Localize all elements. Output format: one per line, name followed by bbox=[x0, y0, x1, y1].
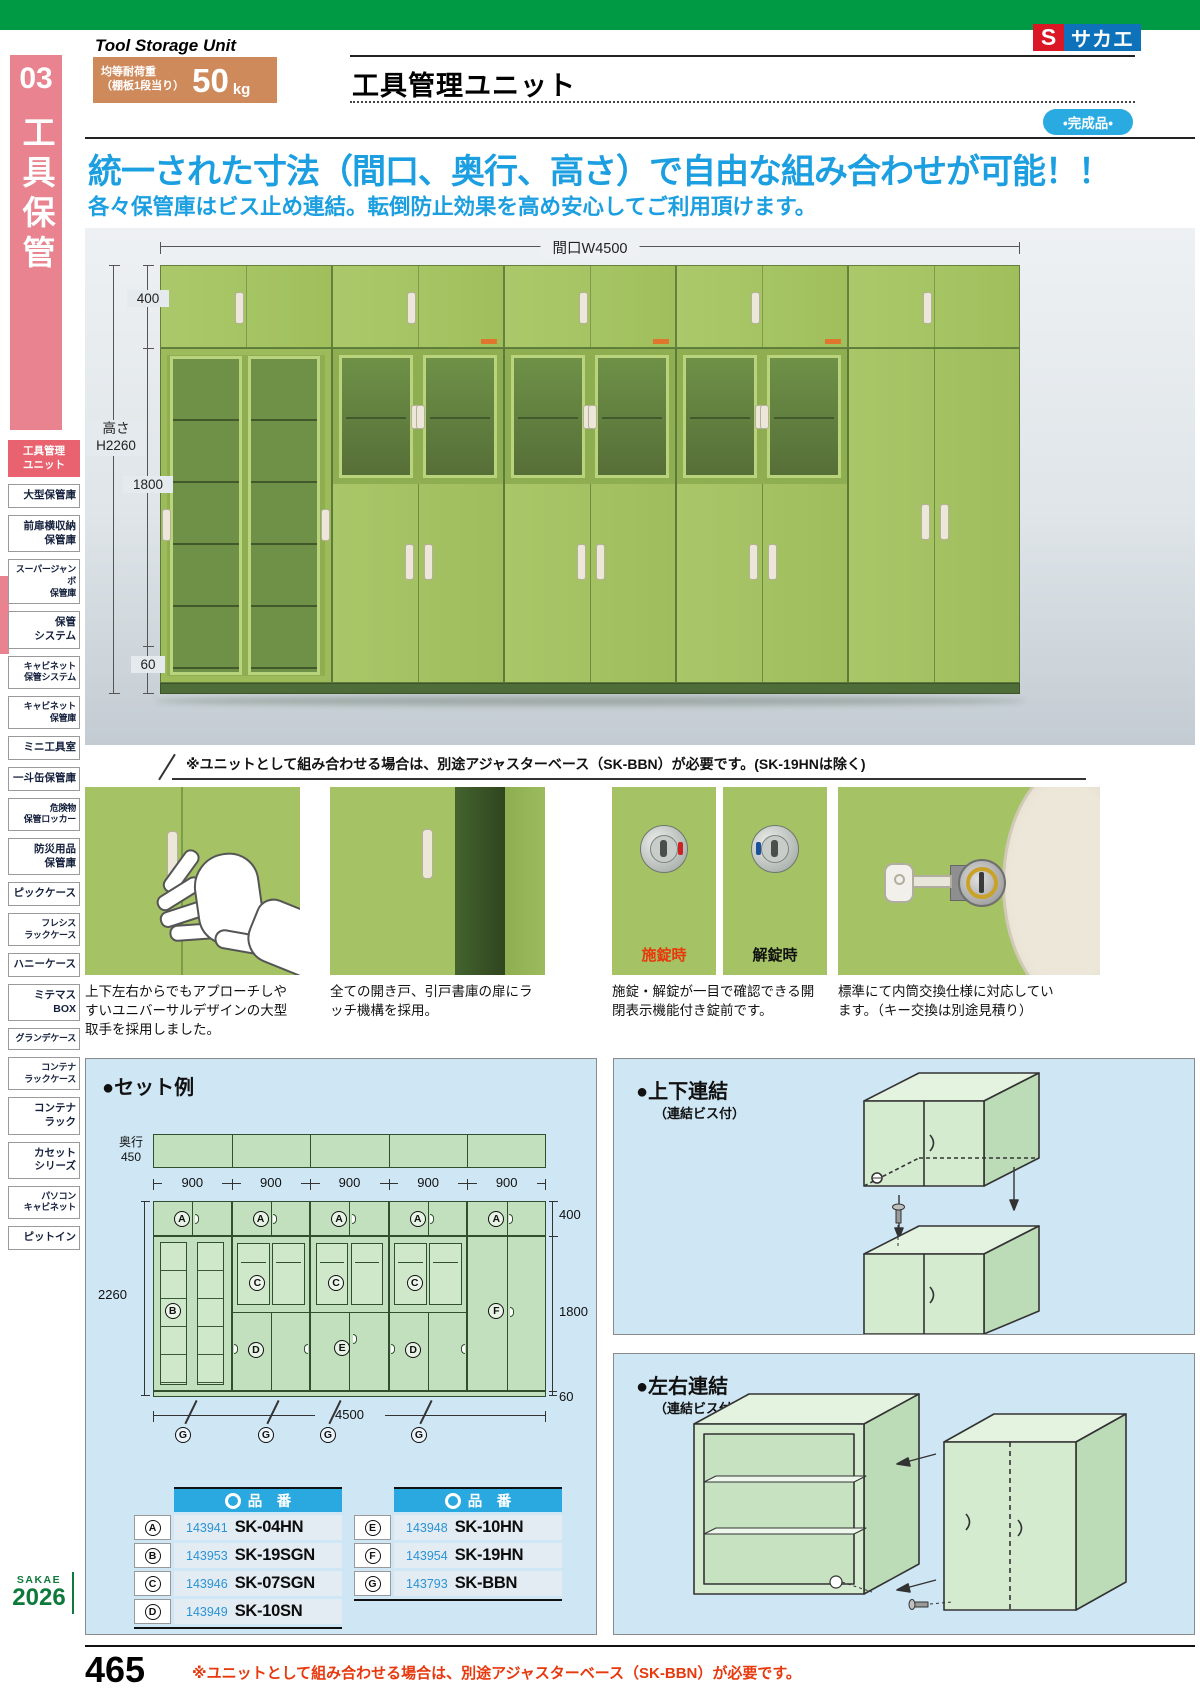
marker-g: G bbox=[320, 1427, 336, 1443]
header-rule-top bbox=[350, 55, 1135, 57]
feature-caption-4: 標準にて内筒交換仕様に対応しています。（キー交換は別途見積り） bbox=[838, 982, 1056, 1020]
height-dimension-label: 高さH2260 bbox=[87, 420, 145, 456]
depth-dimension-label: 奥行450 bbox=[112, 1135, 150, 1165]
horizontal-link-illustration bbox=[614, 1354, 1196, 1634]
vertical-link-illustration bbox=[614, 1059, 1196, 1334]
cabinet-unit-composite bbox=[160, 265, 1020, 694]
lock-cylinder-icon bbox=[640, 825, 688, 873]
finished-product-badge: •完成品• bbox=[1043, 109, 1133, 135]
lock-locked-photo: 施錠時 bbox=[612, 787, 716, 975]
locked-label: 施錠時 bbox=[612, 944, 716, 965]
sidebar-item-super-jumbo[interactable]: スーパージャンボ 保管庫 bbox=[8, 559, 80, 604]
feature-caption-2: 全ての開き戸、引戸書庫の扉にラッチ機構を採用。 bbox=[330, 982, 545, 1020]
catalog-edition-mark: SAKAE 2026 bbox=[12, 1572, 74, 1614]
upper-cabinet bbox=[676, 265, 848, 348]
catalog-page: S サカエ 03 工具保管 工具管理 ユニット 大型保管庫 前扉横収納 保管庫 … bbox=[0, 0, 1200, 1697]
dim-mid-label: 1800 bbox=[557, 1304, 590, 1319]
headline-line2: 各々保管庫はビス止め連結。転倒防止効果を高め安心してご利用頂けます。 bbox=[88, 190, 816, 221]
key-icon bbox=[884, 863, 914, 903]
feature-photo-handle bbox=[85, 787, 300, 975]
table-row: G 143793SK-BBN bbox=[354, 1571, 562, 1596]
set-example-title: ●セット例 bbox=[102, 1071, 194, 1100]
depth-strip-diagram bbox=[153, 1134, 546, 1168]
table-row: F 143954SK-19HN bbox=[354, 1543, 562, 1568]
part-number-table-left: 品 番 A 143941SK-04HN B 143953SK-19SGN C 1… bbox=[134, 1487, 342, 1629]
unit-b-cell: B bbox=[153, 1236, 232, 1391]
photo-note: ※ユニットとして組み合わせる場合は、別途アジャスターベース（SK-BBN）が必要… bbox=[172, 752, 1086, 780]
sidebar-item-large-cabinet[interactable]: 大型保管庫 bbox=[8, 484, 80, 508]
sidebar-item-cabinet-storage[interactable]: キャビネット 保管庫 bbox=[8, 696, 80, 729]
right-segment-dimension bbox=[552, 1201, 553, 1396]
dim-base-label: 60 bbox=[557, 1389, 575, 1404]
marker-g: G bbox=[411, 1427, 427, 1443]
unit-c-d-cell: C D bbox=[232, 1236, 311, 1391]
load-capacity-value: 50 bbox=[192, 64, 229, 97]
unit-c-d-cell: C D bbox=[389, 1236, 468, 1391]
footer-note: ※ユニットとして組み合わせる場合は、別途アジャスターベース（SK-BBN）が必要… bbox=[192, 1662, 801, 1683]
glass-top-sliding-bottom-cabinet bbox=[504, 348, 676, 683]
category-name-tab: 工具保管 bbox=[10, 103, 62, 430]
lock-unlocked-photo: 解錠時 bbox=[723, 787, 827, 975]
sidebar-item-cassette-series[interactable]: カセット シリーズ bbox=[8, 1142, 80, 1179]
dim-top-label: 400 bbox=[557, 1207, 583, 1222]
total-height-dimension bbox=[144, 1201, 145, 1396]
upper-cabinet bbox=[504, 265, 676, 348]
sakae-logo: S サカエ bbox=[1033, 24, 1141, 51]
lock-cylinder-icon bbox=[751, 825, 799, 873]
segment-width-dimension: 900 900 900 900 900 bbox=[153, 1183, 546, 1184]
category-name-label: 工具保管 bbox=[12, 115, 60, 430]
sakae-tag-icon bbox=[653, 339, 669, 344]
sidebar-item-hazard-locker[interactable]: 危険物 保管ロッカー bbox=[8, 798, 80, 831]
large-handle bbox=[1002, 787, 1100, 975]
header-rule-dotted bbox=[350, 101, 1135, 103]
feature-photo-key-cylinder bbox=[838, 787, 1100, 975]
logo-brand-name: サカエ bbox=[1064, 24, 1141, 51]
unlocked-label: 解錠時 bbox=[723, 944, 827, 965]
sidebar-item-disaster-cabinet[interactable]: 防災用品 保管庫 bbox=[8, 838, 80, 875]
adjuster-base-diagram bbox=[153, 1391, 546, 1397]
load-capacity-unit: kg bbox=[233, 81, 251, 103]
page-number: 465 bbox=[85, 1649, 145, 1691]
solid-sliding-door-cabinet bbox=[848, 348, 1020, 683]
sidebar-item-front-door-cabinet[interactable]: 前扉横収納 保管庫 bbox=[8, 515, 80, 552]
sidebar-item-grande-case[interactable]: グランデケース bbox=[8, 1028, 80, 1050]
top-brand-bar bbox=[0, 0, 1200, 30]
horizontal-link-panel: ●左右連結 （連結ビス付） bbox=[613, 1353, 1195, 1635]
marker-g: G bbox=[258, 1427, 274, 1443]
ring-icon bbox=[445, 1493, 461, 1509]
sidebar-item-container-rack-case[interactable]: コンテナ ラックケース bbox=[8, 1057, 80, 1090]
feature-photo-latch bbox=[330, 787, 545, 975]
width-dimension-line: 間口W4500 bbox=[160, 246, 1020, 247]
feature-caption-3: 施錠・解錠が一目で確認できる開閉表示機能付き錠前です。 bbox=[612, 982, 824, 1020]
sidebar-item-flexis-rack-case[interactable]: フレシス ラックケース bbox=[8, 913, 80, 946]
unit-c-e-cell: C E bbox=[310, 1236, 389, 1391]
unit-f-cell: F bbox=[467, 1236, 546, 1391]
width-dimension-label: 間口W4500 bbox=[541, 237, 640, 258]
sidebar-item-mitemasu-box[interactable]: ミテマス BOX bbox=[8, 984, 80, 1021]
feature-caption-1: 上下左右からでもアプローチしやすいユニバーサルデザインの大型取手を採用しました。 bbox=[85, 982, 297, 1039]
sidebar-item-cabinet-system[interactable]: キャビネット 保管システム bbox=[8, 656, 80, 689]
glass-top-sliding-bottom-cabinet bbox=[332, 348, 504, 683]
vertical-link-panel: ●上下連結 （連結ビス付） bbox=[613, 1058, 1195, 1335]
set-example-panel: ●セット例 奥行450 900 900 900 900 900 A A A A … bbox=[85, 1058, 597, 1635]
sidebar-item-tool-unit[interactable]: 工具管理 ユニット bbox=[8, 440, 80, 477]
table-row: B 143953SK-19SGN bbox=[134, 1543, 342, 1568]
sakae-tag-icon bbox=[481, 339, 497, 344]
eyebrow-english-title: Tool Storage Unit bbox=[95, 36, 236, 56]
load-capacity-label: 均等耐荷重（棚板1段当り） bbox=[101, 66, 184, 94]
height-total-label: 2260 bbox=[96, 1287, 129, 1302]
category-number-tab: 03 bbox=[10, 55, 62, 103]
table-header: 品 番 bbox=[174, 1487, 342, 1512]
ring-icon bbox=[225, 1493, 241, 1509]
sidebar-item-pick-case[interactable]: ピックケース bbox=[8, 882, 80, 906]
floor-shadow bbox=[155, 696, 1025, 706]
sakae-tag-icon bbox=[825, 339, 841, 344]
page-title: 工具管理ユニット bbox=[352, 64, 576, 103]
sidebar-item-pc-cabinet[interactable]: パソコン キャビネット bbox=[8, 1186, 80, 1219]
logo-s-icon: S bbox=[1033, 24, 1064, 51]
mid-segment-label: 1800 bbox=[123, 476, 173, 493]
upper-cabinet bbox=[848, 265, 1020, 348]
elevation-diagram: A A A A A B C D C E bbox=[153, 1201, 546, 1396]
load-capacity-badge: 均等耐荷重（棚板1段当り） 50 kg bbox=[93, 57, 277, 103]
adjuster-base bbox=[160, 683, 1020, 694]
cylinder-icon bbox=[958, 859, 1006, 907]
glass-bookcase-cabinet bbox=[160, 348, 332, 683]
sidebar-nav: 工具管理 ユニット 大型保管庫 前扉横収納 保管庫 スーパージャンボ 保管庫 保… bbox=[8, 440, 80, 1250]
table-row: E 143948SK-10HN bbox=[354, 1515, 562, 1540]
marker-g: G bbox=[175, 1427, 191, 1443]
total-width-dimension: 4500 bbox=[153, 1415, 546, 1416]
sidebar-item-can-cabinet[interactable]: 一斗缶保管庫 bbox=[8, 767, 80, 791]
sidebar-item-container-rack[interactable]: コンテナ ラック bbox=[8, 1097, 80, 1134]
base-segment-label: 60 bbox=[131, 656, 165, 673]
table-header: 品 番 bbox=[394, 1487, 562, 1512]
product-photo: 間口W4500 bbox=[85, 228, 1195, 745]
height-dimension-line bbox=[113, 265, 114, 694]
sidebar-item-mini-tool-room[interactable]: ミニ工具室 bbox=[8, 736, 80, 760]
upper-cabinet bbox=[160, 265, 332, 348]
table-row: D 143949SK-10SN bbox=[134, 1599, 342, 1624]
sidebar-item-storage-system[interactable]: 保管 システム bbox=[8, 611, 80, 648]
upper-cabinet bbox=[332, 265, 504, 348]
header-rule-bottom bbox=[85, 137, 1195, 139]
sidebar-item-honey-case[interactable]: ハニーケース bbox=[8, 953, 80, 977]
feature-photo-lock-indicator: 施錠時 解錠時 bbox=[612, 787, 827, 975]
glass-top-sliding-bottom-cabinet bbox=[676, 348, 848, 683]
top-segment-label: 400 bbox=[127, 290, 169, 307]
table-row: A 143941SK-04HN bbox=[134, 1515, 342, 1540]
sidebar-item-pit-in[interactable]: ピットイン bbox=[8, 1226, 80, 1250]
table-row: C 143946SK-07SGN bbox=[134, 1571, 342, 1596]
footer-rule bbox=[85, 1645, 1195, 1647]
headline-line1: 統一された寸法（間口、奥行、高さ）で自由な組み合わせが可能！！ bbox=[88, 144, 1111, 193]
part-number-table-right: 品 番 E 143948SK-10HN F 143954SK-19HN G 14… bbox=[354, 1487, 562, 1601]
